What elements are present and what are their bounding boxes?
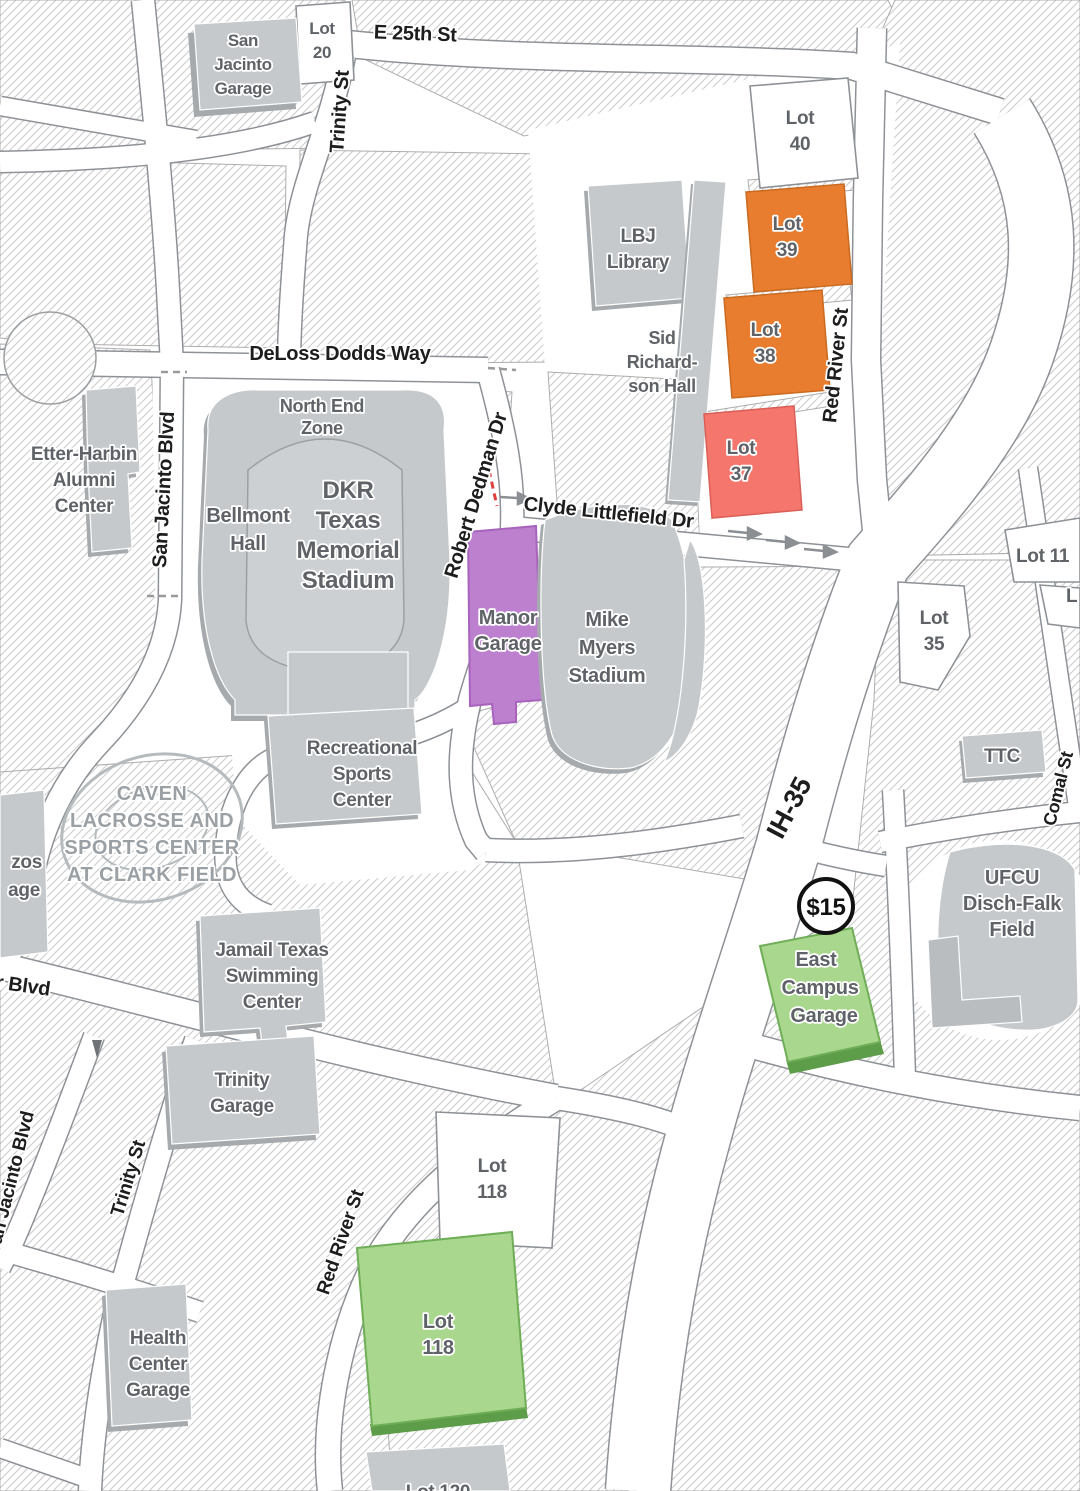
- label-dkr-3: Memorial: [297, 537, 400, 564]
- label-nez-1: North End: [280, 396, 364, 416]
- label-lot37-2: 37: [731, 464, 752, 485]
- label-lot20-2: 20: [313, 43, 331, 62]
- label-sid-2: Richard-: [627, 352, 698, 372]
- lot-38: [724, 290, 830, 398]
- label-bellmont-2: Hall: [230, 533, 265, 555]
- label-lot40-2: 40: [790, 134, 811, 155]
- label-etter-1: Etter-Harbin: [31, 444, 137, 465]
- label-ufcu-2: Disch-Falk: [963, 893, 1062, 915]
- label-dkr-2: Texas: [316, 507, 381, 534]
- label-mm-2: Myers: [579, 637, 635, 659]
- label-lot120-partial: Lot 120: [406, 1482, 470, 1491]
- label-caven-1: CAVEN: [117, 783, 188, 805]
- label-dkr-1: DKR: [322, 477, 373, 504]
- label-jamail-3: Center: [243, 992, 302, 1013]
- label-lbj-2: Library: [607, 252, 670, 273]
- label-caven-4: AT CLARK FIELD: [67, 864, 237, 886]
- red-river-n: [866, 28, 880, 560]
- roundabout: [4, 312, 96, 404]
- label-sid-1: Sid: [648, 328, 675, 348]
- label-ufcu-3: Field: [989, 919, 1034, 941]
- price-badge-text: $15: [806, 894, 845, 921]
- label-rec-2: Sports: [333, 764, 391, 785]
- campus-parking-map: $15 E 25th St Trinity St DeLoss Dodds Wa…: [0, 0, 1080, 1491]
- label-etter-2: Alumni: [53, 470, 116, 491]
- label-sjg-2: Jacinto: [214, 55, 271, 74]
- block-e25th-deloss: [298, 150, 560, 364]
- brazos-garage-partial: [0, 790, 48, 958]
- lot-118-pocket: [436, 1112, 560, 1248]
- label-caven-3: SPORTS CENTER: [64, 837, 239, 859]
- label-lot118w-2: 118: [477, 1182, 507, 1203]
- label-hcg-2: Center: [129, 1354, 188, 1375]
- label-hcg-3: Garage: [126, 1380, 190, 1401]
- label-rec-1: Recreational: [307, 738, 417, 759]
- label-lot39-1: Lot: [773, 214, 803, 235]
- label-lot20-1: Lot: [309, 19, 335, 38]
- label-lot118w-1: Lot: [478, 1156, 508, 1177]
- label-lot37-1: Lot: [727, 438, 757, 459]
- label-lot38-2: 38: [755, 346, 776, 367]
- lot-39: [746, 184, 852, 292]
- label-lot35-1: Lot: [920, 608, 950, 629]
- label-lbj-1: LBJ: [621, 226, 656, 247]
- label-brazos-1: zos: [11, 852, 42, 873]
- label-dkr-4: Stadium: [302, 567, 395, 594]
- lot-37: [704, 406, 802, 518]
- label-lot118g-2: 118: [422, 1337, 454, 1359]
- label-ttc: TTC: [984, 746, 1021, 767]
- label-manor-1: Manor: [479, 607, 538, 629]
- label-caven-2: LACROSSE AND: [70, 810, 234, 832]
- label-nez-2: Zone: [301, 418, 343, 438]
- label-lot40-1: Lot: [786, 108, 816, 129]
- label-lot39-2: 39: [777, 240, 798, 261]
- label-ecg-1: East: [795, 949, 837, 971]
- label-l-partial: L: [1066, 586, 1078, 607]
- label-ecg-2: Campus: [781, 977, 858, 999]
- label-hcg-1: Health: [130, 1328, 186, 1349]
- label-rec-3: Center: [333, 790, 392, 811]
- label-lot118g-1: Lot: [423, 1311, 454, 1333]
- label-ecg-3: Garage: [790, 1005, 857, 1027]
- label-manor-2: Garage: [474, 633, 541, 655]
- label-trinity-n: Trinity St: [326, 69, 354, 154]
- label-mm-1: Mike: [585, 609, 628, 631]
- price-badge: $15: [799, 879, 853, 933]
- lot-40: [750, 78, 858, 188]
- label-brazos-2: age: [8, 880, 40, 901]
- label-jamail-1: Jamail Texas: [215, 940, 328, 961]
- label-jamail-2: Swimming: [226, 966, 319, 987]
- label-deloss: DeLoss Dodds Way: [249, 343, 431, 365]
- label-lot38-1: Lot: [751, 320, 781, 341]
- label-ufcu-1: UFCU: [985, 867, 1039, 889]
- label-bellmont-1: Bellmont: [206, 505, 290, 527]
- label-sjg-3: Garage: [215, 79, 272, 98]
- label-e25th: E 25th St: [373, 22, 457, 47]
- label-etter-3: Center: [55, 496, 114, 517]
- label-lot11-partial: Lot 11: [1016, 546, 1070, 567]
- label-tg-1: Trinity: [215, 1070, 271, 1091]
- map-canvas: $15 E 25th St Trinity St DeLoss Dodds Wa…: [0, 0, 1080, 1491]
- label-sid-3: son Hall: [628, 376, 696, 396]
- label-mm-3: Stadium: [569, 665, 646, 687]
- label-lot35-2: 35: [924, 634, 945, 655]
- label-sjg-1: San: [228, 31, 258, 50]
- label-tg-2: Garage: [210, 1096, 274, 1117]
- arrow-line-rd: [500, 497, 518, 498]
